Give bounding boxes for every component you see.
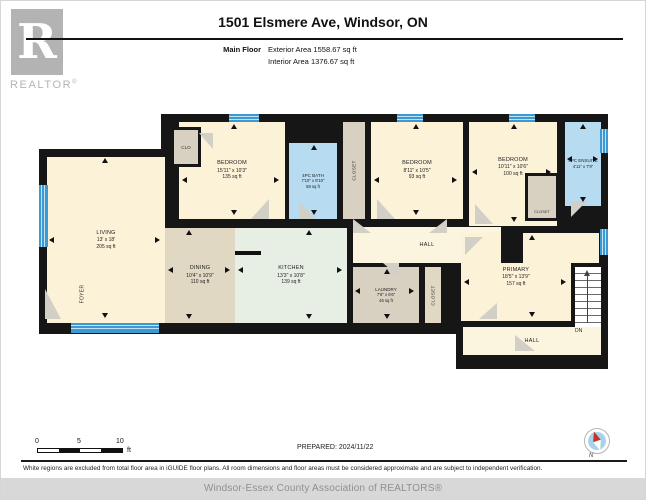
closet-clo: CLO: [171, 127, 201, 167]
stair-direction-line: [587, 275, 588, 323]
dim-arrow-icon: [529, 312, 535, 317]
room-ensuite: 4PC ENSUITE4'11" x 7'9": [565, 122, 601, 206]
room-area: 139 sq ft: [277, 279, 304, 286]
room-dining: DINING10'4" x 10'9"110 sq ft: [165, 228, 235, 323]
room-kitchen: KITCHEN13'3" x 10'8"139 sq ft: [235, 228, 347, 323]
window: [39, 185, 48, 247]
dim-arrow-icon: [355, 288, 360, 294]
room-name: PRIMARY: [502, 267, 529, 274]
dim-arrow-icon: [155, 237, 160, 243]
dim-arrow-icon: [413, 210, 419, 215]
room-bedroom-2: BEDROOM8'11" x 10'5"93 sq ft: [371, 122, 463, 219]
dim-arrow-icon: [511, 124, 517, 129]
room-dims: 4'11" x 7'9": [568, 164, 598, 169]
room-area: 58 sq ft: [302, 184, 325, 189]
room-area: 205 sq ft: [96, 244, 115, 251]
dim-arrow-icon: [511, 217, 517, 222]
compass-needle-south: [593, 440, 604, 452]
kitchen-counter: [235, 251, 261, 255]
closet-bedroom-3: CLOSET: [525, 173, 559, 221]
scale-tick-0: 0: [35, 438, 39, 445]
footer-association: Windsor-Essex County Association of REAL…: [1, 483, 645, 494]
dim-arrow-icon: [529, 235, 535, 240]
dim-arrow-icon: [231, 124, 237, 129]
dim-arrow-icon: [306, 230, 312, 235]
room-name: FOYER: [79, 285, 85, 304]
closet-bath: CLOSET: [343, 122, 365, 219]
closet-laundry: CLOSET: [425, 267, 441, 323]
compass-north-label: N: [589, 453, 593, 459]
dim-arrow-icon: [274, 177, 279, 183]
dim-arrow-icon: [102, 158, 108, 163]
dim-arrow-icon: [374, 177, 379, 183]
window: [229, 114, 259, 122]
room-area: 93 sq ft: [402, 174, 432, 181]
staircase: [571, 263, 601, 327]
room-foyer: FOYER: [67, 273, 97, 315]
dim-arrow-icon: [546, 169, 551, 175]
dim-arrow-icon: [567, 156, 572, 162]
floor-plan-page: R REALTOR® 1501 Elsmere Ave, Windsor, ON…: [0, 0, 646, 500]
page-title: 1501 Elsmere Ave, Windsor, ON: [1, 14, 645, 30]
dim-arrow-icon: [409, 288, 414, 294]
dim-arrow-icon: [384, 314, 390, 319]
room-name: HALL: [420, 242, 435, 248]
dim-arrow-icon: [472, 169, 477, 175]
room-name: DINING: [186, 265, 213, 272]
prepared-date: PREPARED: 2024/11/22: [297, 444, 373, 451]
compass-needle: [582, 426, 612, 456]
footer-divider: [21, 460, 627, 462]
dim-arrow-icon: [238, 267, 243, 273]
stair-arrow-icon: [584, 270, 590, 276]
room-name: BEDROOM: [498, 157, 528, 164]
dim-arrow-icon: [337, 267, 342, 273]
dim-arrow-icon: [311, 145, 317, 150]
scale-tick-10: 10: [116, 438, 124, 445]
dim-arrow-icon: [182, 177, 187, 183]
dim-arrow-icon: [168, 267, 173, 273]
window: [71, 323, 159, 333]
room-name: HALL: [525, 338, 540, 344]
scale-tick-5: 5: [77, 438, 81, 445]
window: [600, 129, 608, 153]
dim-arrow-icon: [580, 197, 586, 202]
window: [600, 229, 608, 255]
dim-arrow-icon: [231, 210, 237, 215]
interior-area: Interior Area 1376.67 sq ft: [268, 57, 354, 66]
room-area: 110 sq ft: [186, 279, 213, 286]
room-name: BEDROOM: [402, 160, 432, 167]
room-name: CLO: [181, 145, 190, 150]
dim-arrow-icon: [102, 313, 108, 318]
dim-arrow-icon: [225, 267, 230, 273]
dim-arrow-icon: [464, 279, 469, 285]
room-area: 46 sq ft: [375, 298, 396, 303]
realtor-wordmark: REALTOR®: [10, 79, 78, 91]
scale-unit: ft: [127, 447, 131, 454]
room-name: CLOSET: [431, 285, 436, 305]
dim-arrow-icon: [384, 269, 390, 274]
dim-arrow-icon: [561, 279, 566, 285]
room-name: BEDROOM: [217, 160, 247, 167]
room-name: LIVING: [96, 230, 115, 237]
room-bath: 4PC BATH7'10" x 8'10"58 sq ft: [289, 143, 337, 219]
compass-icon: [584, 428, 610, 454]
registered-mark: ®: [72, 79, 78, 85]
dim-arrow-icon: [452, 177, 457, 183]
dim-arrow-icon: [186, 230, 192, 235]
dim-arrow-icon: [413, 124, 419, 129]
room-name: CLOSET: [534, 209, 550, 214]
room-area: 135 sq ft: [217, 174, 247, 181]
dim-arrow-icon: [186, 314, 192, 319]
window: [509, 114, 535, 122]
window: [397, 114, 423, 122]
room-area: 100 sq ft: [498, 171, 528, 178]
wall-stub: [501, 227, 523, 263]
dim-arrow-icon: [306, 314, 312, 319]
room-area: 157 sq ft: [502, 281, 529, 288]
disclaimer-text: White regions are excluded from total fl…: [23, 465, 633, 472]
exterior-area: Exterior Area 1558.67 sq ft: [268, 45, 357, 54]
room-living: LIVING13' x 18'205 sq ft: [47, 157, 165, 323]
floor-label: Main Floor: [207, 45, 261, 54]
room-name: CLOSET: [352, 160, 357, 180]
dim-arrow-icon: [580, 124, 586, 129]
room-name: KITCHEN: [277, 265, 304, 272]
dim-arrow-icon: [311, 210, 317, 215]
title-divider: [26, 38, 623, 40]
dim-arrow-icon: [593, 156, 598, 162]
stairs-down-label: DN: [575, 328, 582, 334]
scale-bar: [37, 448, 123, 453]
dim-arrow-icon: [49, 237, 54, 243]
